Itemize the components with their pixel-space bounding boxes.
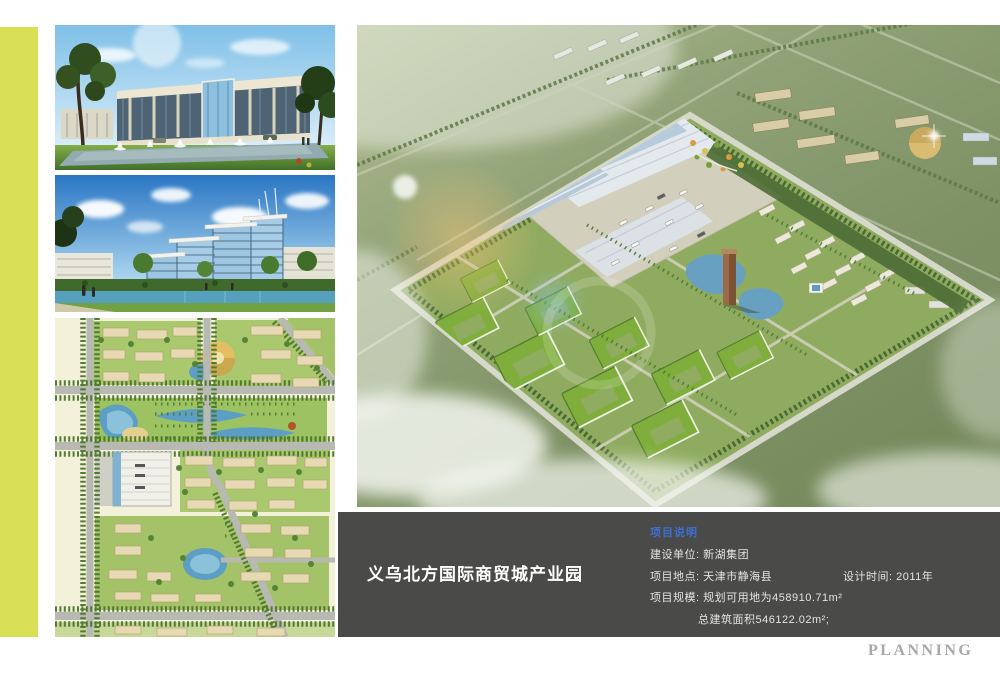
- water: [55, 291, 335, 303]
- office-building-illustration: [55, 25, 335, 170]
- info-location: 项目地点: 天津市静海县: [650, 568, 772, 584]
- stepped-building-illustration: [55, 175, 335, 312]
- info-design-time: 设计时间: 2011年: [843, 568, 933, 584]
- project-title: 义乌北方国际商贸城产业园: [367, 560, 583, 585]
- project-info-heading: 项目说明: [650, 524, 698, 540]
- office-building-photo: [55, 25, 335, 170]
- aerial-park-illustration: [357, 25, 1000, 507]
- site-plan-illustration: [55, 318, 335, 637]
- accent-stripe: [0, 27, 38, 637]
- big-box-building: [113, 452, 171, 506]
- stepped-building-photo: [55, 175, 335, 312]
- planning-board-page: 义乌北方国际商贸城产业园 项目说明 建设单位: 新湖集团 项目地点: 天津市静海…: [0, 0, 1000, 678]
- info-scale-line2: 总建筑面积546122.02m²;: [698, 611, 829, 627]
- info-bar: 义乌北方国际商贸城产业园 项目说明 建设单位: 新湖集团 项目地点: 天津市静海…: [338, 512, 1000, 637]
- pavilion: [288, 422, 296, 430]
- hedge: [55, 279, 335, 291]
- info-client: 建设单位: 新湖集团: [650, 546, 749, 562]
- aerial-rendering-photo: [357, 25, 1000, 507]
- site-plan-photo: [55, 318, 335, 637]
- info-scale-line1: 项目规模: 规划可用地为458910.71m²: [650, 589, 842, 605]
- planning-footer-label: PLANNING: [868, 642, 973, 660]
